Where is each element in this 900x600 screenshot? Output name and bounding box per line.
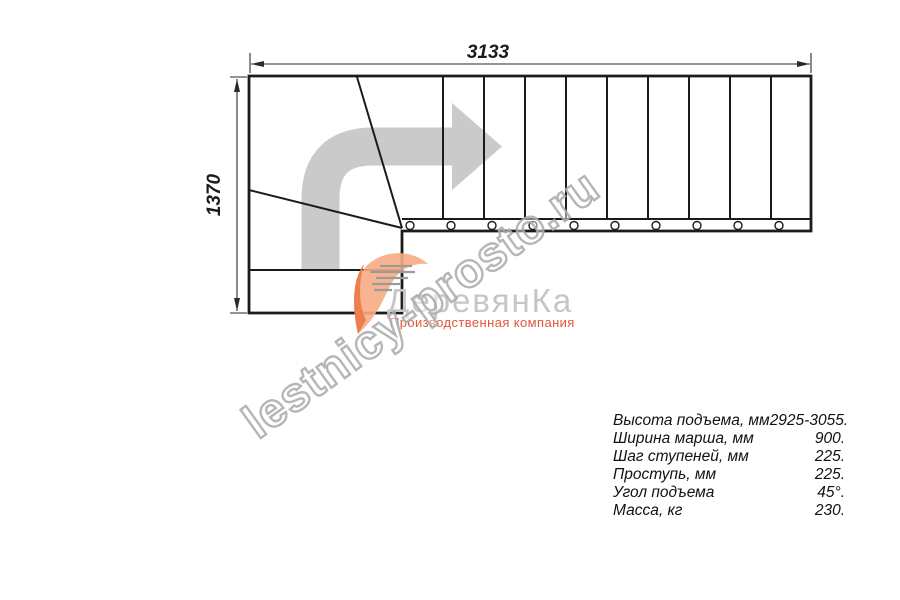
spec-value: 225. <box>815 466 845 484</box>
baluster-circle <box>652 222 660 230</box>
dimension-top: 3133 <box>250 42 811 73</box>
spec-label: Шаг ступеней, мм <box>613 448 749 466</box>
spec-label: Высота подъема, мм <box>613 412 770 430</box>
spec-row: Проступь, мм 225. <box>613 466 845 484</box>
spec-row: Ширина марша, мм 900. <box>613 430 845 448</box>
spec-value: 45°. <box>817 484 845 502</box>
baluster-circle <box>693 222 701 230</box>
spec-row: Высота подъема, мм 2925-3055. <box>613 412 845 430</box>
spec-value: 225. <box>815 448 845 466</box>
dim-arrow-left-icon <box>251 61 264 67</box>
quarter-turn-right-arrow-icon <box>321 103 503 271</box>
spec-label: Угол подъема <box>613 484 714 502</box>
baluster-circle <box>570 222 578 230</box>
dimension-left-label: 1370 <box>204 173 225 216</box>
dimension-left: 1370 <box>204 77 247 313</box>
spec-list: Высота подъема, мм 2925-3055. Ширина мар… <box>613 412 845 520</box>
spec-value: 900. <box>815 430 845 448</box>
baluster-circles <box>406 222 783 230</box>
dim-arrow-up-icon <box>234 79 240 92</box>
stair-drawing-page: 3133 1370 ДеревянКа Производственная <box>0 0 900 600</box>
spec-row: Угол подъема 45°. <box>613 484 845 502</box>
spec-value: 230. <box>815 502 845 520</box>
spec-label: Проступь, мм <box>613 466 716 484</box>
logo-caption: Производственная компания <box>390 315 575 330</box>
spec-label: Масса, кг <box>613 502 682 520</box>
baluster-circle <box>611 222 619 230</box>
baluster-circle <box>775 222 783 230</box>
spec-value: 2925-3055. <box>770 412 848 430</box>
spec-row: Шаг ступеней, мм 225. <box>613 448 845 466</box>
dim-arrow-right-icon <box>797 61 810 67</box>
baluster-circle <box>734 222 742 230</box>
dim-arrow-down-icon <box>234 298 240 311</box>
baluster-circle <box>447 222 455 230</box>
company-logo: ДеревянКа Производственная компания <box>350 250 580 340</box>
baluster-circle <box>529 222 537 230</box>
baluster-circle <box>488 222 496 230</box>
direction-arrow-head <box>452 103 502 190</box>
spec-row: Масса, кг 230. <box>613 502 845 520</box>
spec-label: Ширина марша, мм <box>613 430 754 448</box>
logo-wordmark: ДеревянКа <box>387 282 573 319</box>
baluster-circle <box>406 222 414 230</box>
dimension-top-label: 3133 <box>467 42 510 63</box>
